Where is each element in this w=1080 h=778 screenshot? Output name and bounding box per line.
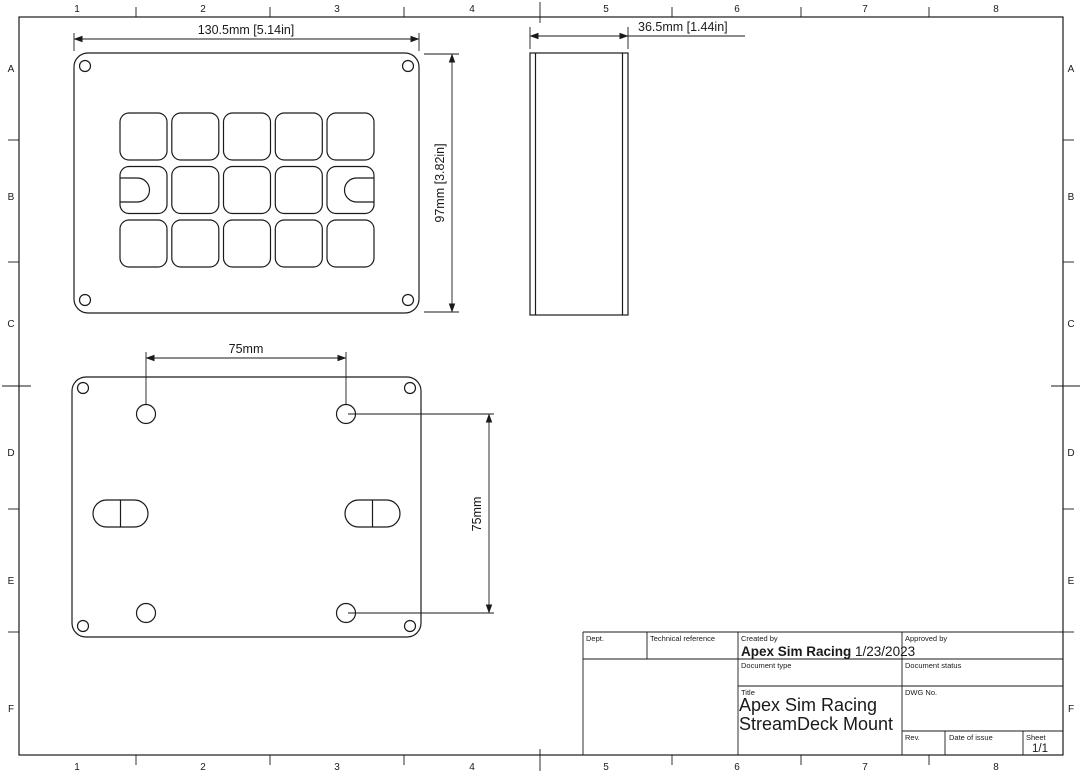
corner-screw-hole [78, 383, 89, 394]
grid-label: A [8, 64, 15, 75]
grid-label: F [8, 704, 14, 715]
right-side-cutout [345, 178, 375, 202]
grid-label: D [7, 448, 14, 459]
grid-label: 8 [993, 4, 999, 15]
dimension-front-width: 130.5mm [5.14in] [74, 23, 419, 51]
title-block: Dept. Technical reference Created by Ape… [583, 632, 1063, 755]
dimension-text: 75mm [470, 497, 484, 532]
corner-screw-hole [405, 621, 416, 632]
corner-screw-hole [80, 295, 91, 306]
dimension-text: 97mm [3.82in] [433, 143, 447, 222]
grid-label: 1 [74, 762, 80, 773]
grid-row-labels-right: A B C D E F [1067, 64, 1074, 715]
created-by-name: Apex Sim Racing [741, 644, 851, 659]
grid-label: 2 [200, 4, 206, 15]
dimension-hole-spacing-horizontal: 75mm [146, 342, 346, 404]
grid-label: 3 [334, 4, 340, 15]
created-by-value: Apex Sim Racing 1/23/2023 [741, 644, 915, 659]
grid-label: 1 [74, 4, 80, 15]
corner-screw-hole [403, 295, 414, 306]
vesa-mount-hole [137, 405, 156, 424]
technical-reference-label: Technical reference [650, 634, 715, 643]
grid-label: 5 [603, 4, 609, 15]
grid-label: 6 [734, 762, 740, 773]
frame-ticks-right [1051, 140, 1080, 632]
created-by-label: Created by [741, 634, 778, 643]
grid-label: D [1067, 448, 1074, 459]
grid-label: 5 [603, 762, 609, 773]
dept-label: Dept. [586, 634, 604, 643]
grid-label: E [1068, 576, 1075, 587]
frame-ticks-left [2, 140, 31, 632]
drawing-frame: 1 2 3 4 5 6 7 8 1 2 3 4 5 6 7 8 A B C D … [2, 2, 1080, 773]
grid-label: 2 [200, 762, 206, 773]
keypad-button-grid [120, 113, 374, 267]
grid-label: E [8, 576, 15, 587]
vesa-mount-hole [137, 604, 156, 623]
cad-drawing: 1 2 3 4 5 6 7 8 1 2 3 4 5 6 7 8 A B C D … [0, 0, 1080, 778]
back-plate-outline [72, 377, 421, 637]
grid-label: C [1067, 319, 1074, 330]
dimension-text: 75mm [229, 342, 264, 356]
grid-label: A [1068, 64, 1075, 75]
dimension-side-depth: 36.5mm [1.44in] [530, 20, 745, 49]
side-outline [530, 53, 628, 315]
corner-screw-hole [405, 383, 416, 394]
grid-label: F [1068, 704, 1074, 715]
front-plate-outline [74, 53, 419, 313]
drawing-title-line2: StreamDeck Mount [739, 714, 893, 734]
created-by-date: 1/23/2023 [851, 644, 915, 659]
date-of-issue-label: Date of issue [949, 733, 993, 742]
left-side-cutout [120, 178, 150, 202]
sheet-value: 1/1 [1032, 743, 1048, 755]
slot-cutout-left [93, 500, 148, 527]
frame-ticks-bottom [136, 749, 929, 771]
rev-label: Rev. [905, 733, 920, 742]
frame-ticks-top [136, 2, 929, 23]
grid-label: 7 [862, 762, 868, 773]
grid-row-labels-left: A B C D E F [7, 64, 14, 715]
dwg-no-label: DWG No. [905, 688, 937, 697]
grid-label: 4 [469, 762, 475, 773]
dimension-text: 36.5mm [1.44in] [638, 20, 728, 34]
approved-by-label: Approved by [905, 634, 947, 643]
grid-label: B [1068, 192, 1075, 203]
grid-label: 4 [469, 4, 475, 15]
front-view: 130.5mm [5.14in] 97mm [3.82in] [74, 23, 459, 313]
grid-label: 3 [334, 762, 340, 773]
sheet-label: Sheet [1026, 733, 1047, 742]
drawing-title-line1: Apex Sim Racing [739, 695, 877, 715]
back-view: 75mm 75mm [72, 342, 494, 637]
corner-screw-hole [78, 621, 89, 632]
grid-label: B [8, 192, 15, 203]
grid-column-labels-bottom: 1 2 3 4 5 6 7 8 [74, 762, 999, 773]
corner-screw-hole [403, 61, 414, 72]
dimension-text: 130.5mm [5.14in] [198, 23, 295, 37]
slot-cutout-right [345, 500, 400, 527]
grid-label: 7 [862, 4, 868, 15]
grid-label: 6 [734, 4, 740, 15]
grid-label: 8 [993, 762, 999, 773]
document-type-label: Document type [741, 661, 791, 670]
dimension-front-height: 97mm [3.82in] [424, 54, 459, 312]
corner-screw-hole [80, 61, 91, 72]
document-status-label: Document status [905, 661, 962, 670]
grid-column-labels-top: 1 2 3 4 5 6 7 8 [74, 4, 999, 15]
grid-label: C [7, 319, 14, 330]
side-view: 36.5mm [1.44in] [530, 20, 745, 315]
drawing-sheet: 1 2 3 4 5 6 7 8 1 2 3 4 5 6 7 8 A B C D … [0, 0, 1080, 778]
